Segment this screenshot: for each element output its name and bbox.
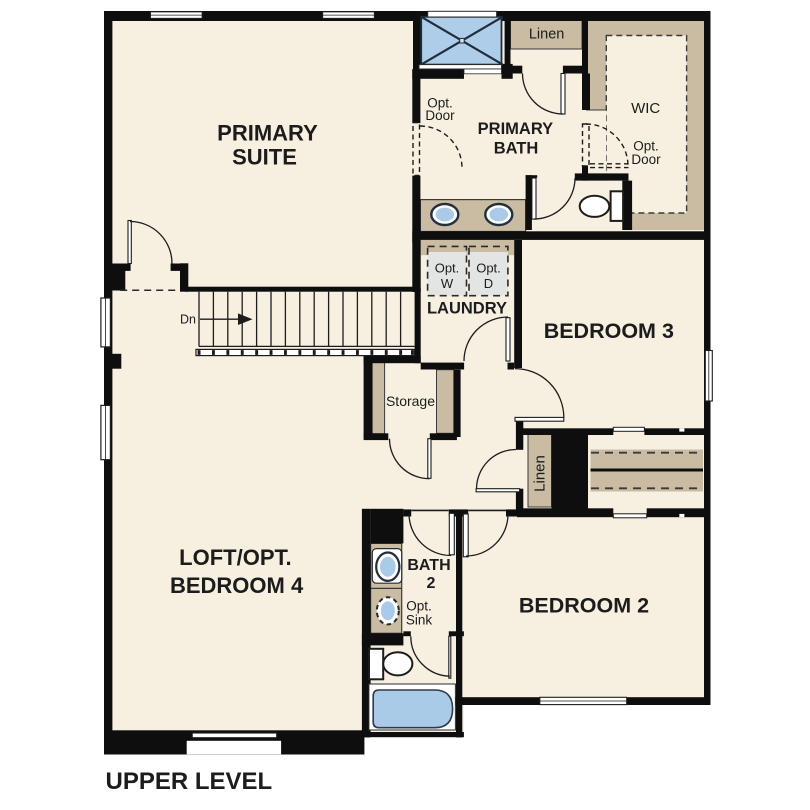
svg-text:W: W bbox=[441, 276, 454, 291]
svg-text:UPPER LEVEL: UPPER LEVEL bbox=[106, 768, 273, 795]
svg-text:Linen: Linen bbox=[531, 455, 548, 492]
svg-text:Sink: Sink bbox=[406, 613, 433, 628]
svg-text:SUITE: SUITE bbox=[232, 145, 297, 170]
svg-text:BATH: BATH bbox=[407, 557, 450, 574]
svg-text:Opt.: Opt. bbox=[476, 261, 501, 276]
svg-text:PRIMARY: PRIMARY bbox=[478, 120, 553, 138]
svg-text:Door: Door bbox=[425, 108, 455, 123]
svg-text:BEDROOM 4: BEDROOM 4 bbox=[170, 573, 304, 598]
svg-text:Opt.: Opt. bbox=[406, 599, 432, 614]
svg-text:PRIMARY: PRIMARY bbox=[217, 121, 318, 146]
svg-text:2: 2 bbox=[427, 575, 436, 592]
svg-text:BATH: BATH bbox=[494, 140, 539, 158]
svg-text:WIC: WIC bbox=[631, 100, 660, 117]
svg-text:LAUNDRY: LAUNDRY bbox=[427, 300, 507, 318]
svg-text:BEDROOM 3: BEDROOM 3 bbox=[544, 319, 674, 343]
svg-text:Door: Door bbox=[631, 152, 661, 167]
svg-text:Linen: Linen bbox=[529, 27, 564, 43]
svg-text:Dn: Dn bbox=[180, 313, 196, 327]
svg-text:Opt.: Opt. bbox=[435, 261, 460, 276]
svg-text:LOFT/OPT.: LOFT/OPT. bbox=[179, 545, 291, 570]
svg-text:BEDROOM 2: BEDROOM 2 bbox=[519, 594, 649, 618]
svg-text:D: D bbox=[484, 276, 493, 291]
svg-text:Storage: Storage bbox=[386, 393, 435, 409]
